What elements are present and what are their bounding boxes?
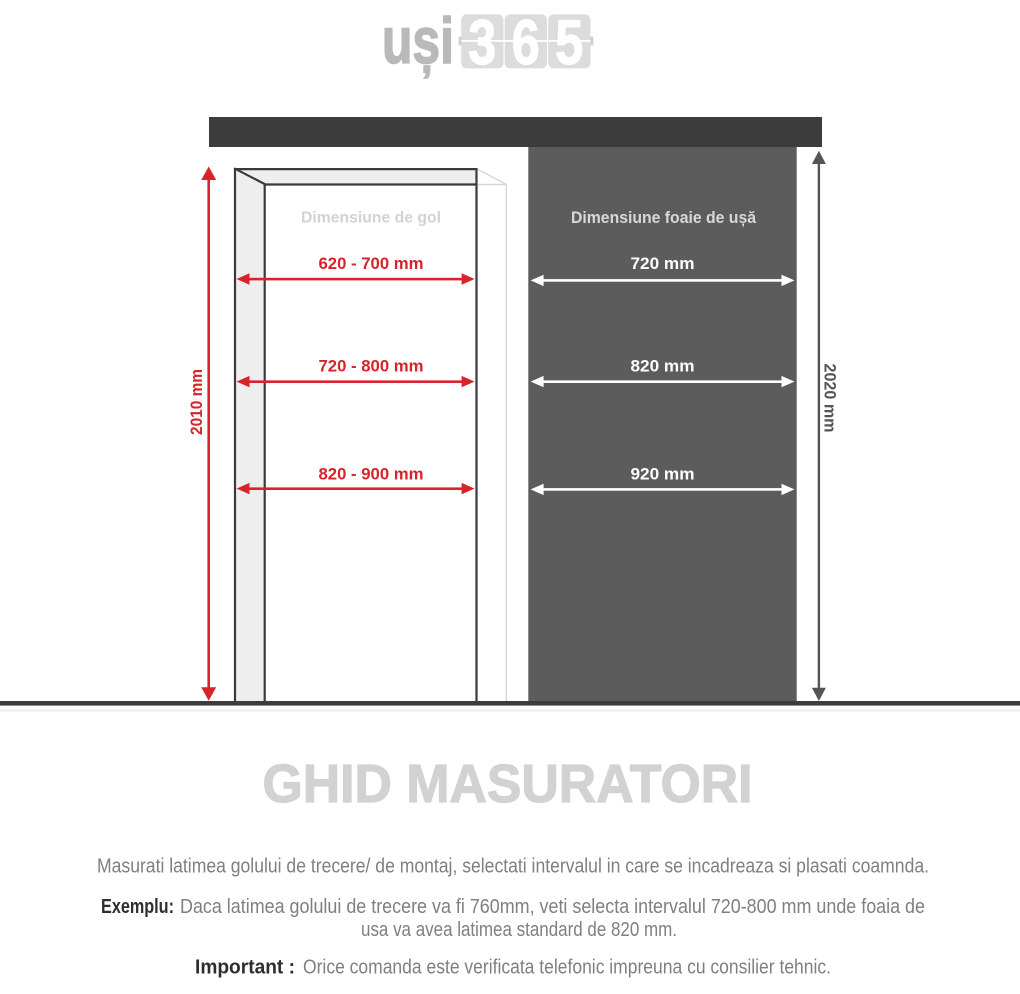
svg-text:5: 5 [555, 8, 583, 78]
svg-text:720 mm: 720 mm [631, 255, 695, 273]
svg-text:GHID MASURATORI: GHID MASURATORI [263, 754, 753, 814]
svg-text:2020 mm: 2020 mm [821, 364, 839, 433]
svg-text:620 - 700 mm: 620 - 700 mm [319, 255, 424, 273]
svg-text:820 mm: 820 mm [631, 358, 695, 376]
svg-text:Important :: Important : [195, 957, 295, 979]
svg-text:820 - 900 mm: 820 - 900 mm [319, 466, 424, 484]
svg-text:Dimensiune de gol: Dimensiune de gol [301, 210, 441, 227]
svg-text:6: 6 [512, 8, 540, 78]
svg-text:3: 3 [468, 8, 496, 78]
svg-text:Exemplu:: Exemplu: [101, 896, 174, 918]
svg-text:Dimensiune foaie de ușă: Dimensiune foaie de ușă [571, 209, 757, 227]
svg-text:uși: uși [382, 4, 454, 78]
svg-text:2010 mm: 2010 mm [188, 369, 206, 435]
svg-text:usa va avea latimea standard d: usa va avea latimea standard de 820 mm. [361, 919, 677, 941]
svg-text:Orice comanda este verificata: Orice comanda este verificata telefonic … [303, 957, 831, 979]
svg-text:920 mm: 920 mm [631, 466, 695, 484]
svg-text:720 - 800 mm: 720 - 800 mm [319, 358, 424, 376]
svg-text:Daca latimea golului de trecer: Daca latimea golului de trecere va fi 76… [180, 896, 925, 918]
svg-text:Masurati latimea golului de tr: Masurati latimea golului de trecere/ de … [97, 856, 929, 878]
